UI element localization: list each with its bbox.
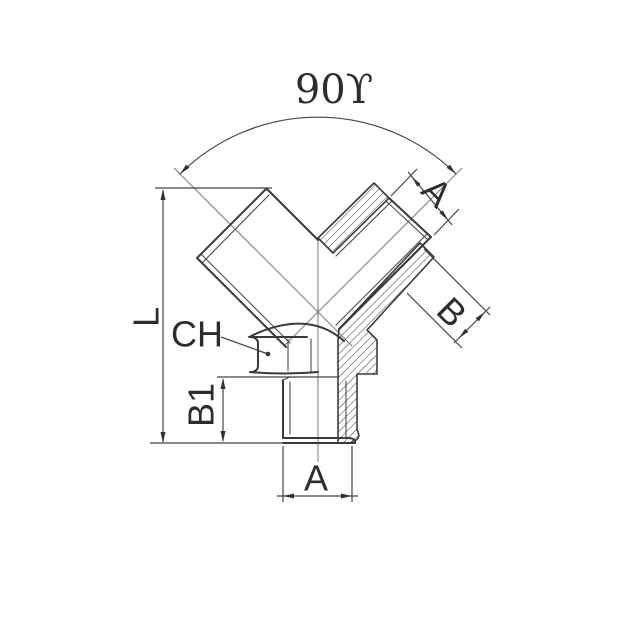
dim-l-label: L [126,307,167,327]
section-hatching [318,183,434,443]
angle-dimension-label: 90ϒ [295,67,373,113]
wrench-size-leader [221,337,270,356]
body-and-hex [249,324,344,374]
dim-a-bottom-label: A [304,458,328,499]
drawing-svg: 90ϒ A B L CH B1 A [0,0,640,640]
dim-b1-label: B1 [181,383,222,427]
wrench-size-label: CH [171,314,223,355]
leader-dot [266,352,271,357]
fitting-technical-drawing: 90ϒ A B L CH B1 A [0,0,640,640]
bottom-thread [217,377,355,443]
angle-dimension-arc [180,117,456,174]
dim-a-top-label: A [414,169,460,215]
